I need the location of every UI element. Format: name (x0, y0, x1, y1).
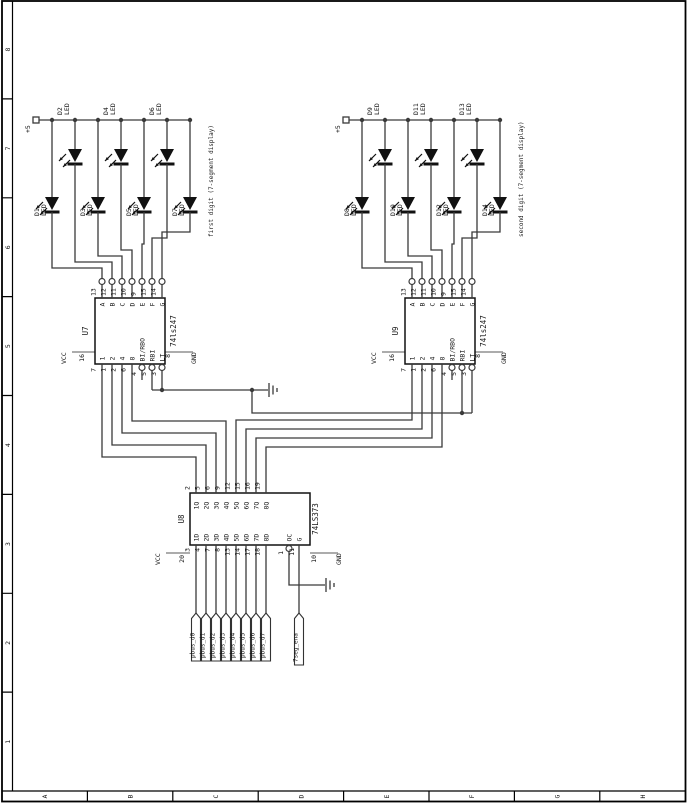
inversion-bubble-icon (159, 279, 165, 285)
led-part-label: LED (109, 103, 117, 115)
pin-label: 6Q (243, 502, 251, 510)
inversion-bubble-icon (159, 365, 165, 371)
row-label: 3 (4, 542, 12, 546)
pin-label: C (119, 302, 127, 306)
led-part-label: LED (373, 103, 381, 115)
row-label: 7 (4, 146, 12, 150)
second-digit-note: second digit (7-segment display) (518, 121, 525, 237)
chip-u9: U9 74ls247 13 A 12 B 11 C 10 D 9 E (370, 279, 508, 381)
pin-label: 4Q (223, 502, 231, 510)
pin-number: 7 (400, 368, 408, 372)
inversion-bubble-icon (469, 365, 475, 371)
pin-number: 14 (234, 548, 242, 556)
vcc-label: VCC (370, 352, 378, 364)
led-part-label: LED (40, 204, 48, 216)
col-label: F (468, 794, 476, 798)
led-top-row: D13 LED (458, 103, 485, 220)
pin-label: 8 (129, 356, 137, 360)
pin-number: 4 (440, 372, 448, 376)
led-top-row: D11 LED (412, 103, 439, 220)
col-label: H (639, 794, 647, 798)
pin-label: 7Q (253, 502, 261, 510)
led-part-label: LED (488, 204, 496, 216)
vcc-label: VCC (60, 352, 68, 364)
led-part-label: LED (155, 103, 163, 115)
pin-number: 5 (140, 372, 148, 376)
inversion-bubble-icon (429, 279, 435, 285)
pin-number: 3 (184, 548, 192, 552)
gnd-symbol-icon (326, 578, 334, 592)
g-pin: G 11 7seg_ena (288, 538, 304, 666)
led-to-u7-wires (52, 220, 190, 279)
vcc-pin-number: 16 (388, 354, 396, 362)
row-label: 4 (4, 443, 12, 447)
led-diode-icon (59, 149, 83, 167)
chip-ref-label: U7 (81, 326, 90, 335)
pin-label: 8 (439, 356, 447, 360)
pin-number: 12 (224, 482, 232, 490)
inversion-bubble-icon (459, 365, 465, 371)
chip-u7: U7 74ls247 13 A 12 B 11 C 10 D 9 E (60, 279, 198, 381)
schematic-canvas: 87654321 ABCDEFGH +5 D2 LED D4 LED D6 (0, 0, 687, 803)
pin-label: C (429, 302, 437, 306)
pin-label: G (296, 538, 304, 542)
gnd-label: GND (500, 352, 508, 364)
inversion-bubble-icon (459, 279, 465, 285)
gnd-symbol-icon (269, 383, 277, 397)
pin-label: 4D (223, 534, 231, 542)
pin-number: 18 (254, 548, 262, 556)
pin-label: 2Q (203, 502, 211, 510)
gnd-label: GND (190, 352, 198, 364)
u7-data-wires (102, 380, 226, 470)
first-digit-note: first digit (7-segment display) (208, 125, 215, 237)
led-top-row: D6 LED (148, 103, 175, 220)
pin-label: A (409, 302, 417, 306)
inversion-bubble-icon (409, 279, 415, 285)
pin-number: 3 (460, 372, 468, 376)
plus5-connector-icon (33, 117, 39, 123)
col-label: A (41, 794, 49, 798)
led-bottom-row: D5 LED (125, 118, 152, 220)
led-part-label: LED (442, 204, 450, 216)
pin-label: 7D (253, 534, 261, 542)
plus5-label: +5 (334, 125, 342, 133)
net-label: pbus_d0 (190, 632, 197, 658)
pin-label: 2D (203, 534, 211, 542)
pin-number: 15 (450, 288, 458, 296)
pin-number: 1 (100, 368, 108, 372)
schematic-page: 87654321 ABCDEFGH +5 D2 LED D4 LED D6 (0, 0, 687, 803)
pin-number: 9 (214, 486, 222, 490)
pin-label: E (449, 302, 457, 306)
led-diode-icon (369, 149, 393, 167)
junction-dot (460, 411, 464, 415)
led-diode-icon (151, 149, 175, 167)
pin-label: OC (286, 534, 294, 542)
col-label: E (383, 794, 391, 798)
pin-number: 4 (130, 372, 138, 376)
sheet-frame: 87654321 ABCDEFGH (2, 1, 686, 802)
pin-number: 11 (420, 288, 428, 296)
led-part-label: LED (178, 204, 186, 216)
pin-number: 9 (440, 292, 448, 296)
row-separators (2, 99, 13, 692)
pin-number: 10 (120, 288, 128, 296)
col-label: G (554, 794, 562, 798)
led-group-first-digit: +5 D2 LED D4 LED D6 LED (24, 103, 215, 278)
pin-number: 6 (204, 486, 212, 490)
pin-number: 1 (410, 368, 418, 372)
led-part-label: LED (86, 204, 94, 216)
inversion-bubble-icon (449, 365, 455, 371)
pin-label: 2 (419, 356, 427, 360)
led-bottom-row: D12 LED (435, 118, 462, 220)
row-label: 1 (4, 740, 12, 744)
u9-data-wires (236, 380, 442, 470)
inversion-bubble-icon (129, 279, 135, 285)
pin-number: 12 (100, 288, 108, 296)
led-top-row: D9 LED (366, 103, 393, 220)
led-part-label: LED (419, 103, 427, 115)
net-label: pbus_d1 (200, 632, 207, 658)
led-diode-icon (415, 149, 439, 167)
pin-label: 1D (193, 534, 201, 542)
chip-ref-label: U8 (177, 514, 186, 524)
led-part-label: LED (396, 204, 404, 216)
gnd-pin-number: 8 (164, 354, 172, 358)
pin-label: BI/RBO (139, 338, 147, 362)
inversion-bubble-icon (469, 279, 475, 285)
vcc-pin-number: 16 (78, 354, 86, 362)
led-diode-icon (105, 149, 129, 167)
chip-part-label: 74LS373 (311, 503, 320, 535)
pin-number: 9 (130, 292, 138, 296)
junction-dot (160, 388, 164, 392)
pin-number: 16 (244, 482, 252, 490)
pin-label: 4 (429, 356, 437, 360)
pin-label: G (159, 302, 167, 306)
gnd-label: GND (335, 553, 343, 565)
col-label: C (212, 794, 220, 798)
pin-number: 12 (410, 288, 418, 296)
net-label: 7seg_ena (293, 633, 300, 662)
pin-number: 2 (184, 486, 192, 490)
gnd-pin-number: 8 (474, 354, 482, 358)
pin-number: 7 (90, 368, 98, 372)
inversion-bubble-icon (149, 365, 155, 371)
pin-label: 3Q (213, 502, 221, 510)
led-top-row: D4 LED (102, 103, 129, 220)
pin-number: 3 (150, 372, 158, 376)
led-bottom-row: D14 LED (481, 118, 508, 220)
led-part-label: LED (132, 204, 140, 216)
pin-number: 13 (90, 288, 98, 296)
pin-label: 6D (243, 534, 251, 542)
pin-number: 5 (450, 372, 458, 376)
pin-label: 1Q (193, 502, 201, 510)
sheet-border (2, 1, 686, 802)
led-bottom-row: D1 LED (33, 118, 60, 220)
col-label: B (127, 794, 135, 798)
pin-label: 3D (213, 534, 221, 542)
net-label: pbus_d4 (230, 632, 237, 658)
pin-number: 5 (194, 486, 202, 490)
pin-number: 6 (430, 368, 438, 372)
pin-label: RBI (149, 350, 157, 362)
inversion-bubble-icon (439, 279, 445, 285)
pin-number: 17 (244, 548, 252, 556)
pin-number: 8 (214, 548, 222, 552)
inversion-bubble-icon (149, 279, 155, 285)
pin-number: 2 (420, 368, 428, 372)
pin-number: 7 (204, 548, 212, 552)
led-bottom-row: D7 LED (171, 118, 198, 220)
pin-number: 11 (288, 548, 296, 556)
pin-label: F (149, 302, 157, 306)
col-separators (87, 791, 599, 802)
pin-number: 1 (277, 551, 285, 555)
row-label: 8 (4, 47, 12, 51)
pin-label: B (419, 302, 427, 306)
pin-label: B (109, 302, 117, 306)
pin-number: 14 (150, 288, 158, 296)
pin-label: 1 (99, 356, 107, 360)
gnd-net-upper (152, 380, 472, 415)
inversion-bubble-icon (419, 279, 425, 285)
net-label: pbus_d6 (250, 632, 257, 658)
pin-label: 8D (263, 534, 271, 542)
gnd-pin-number: 10 (310, 555, 318, 563)
pin-number: 15 (140, 288, 148, 296)
led-part-label: LED (465, 103, 473, 115)
pin-label: D (129, 302, 137, 306)
led-to-u9-wires (362, 220, 500, 279)
pin-number: 11 (110, 288, 118, 296)
inversion-bubble-icon (139, 279, 145, 285)
pin-number: 13 (224, 548, 232, 556)
pin-label: BI/RBO (449, 338, 457, 362)
led-part-label: LED (350, 204, 358, 216)
led-bottom-row: D10 LED (389, 118, 416, 220)
col-label: D (297, 794, 305, 798)
net-label: pbus_d2 (210, 632, 217, 658)
pin-number: 6 (120, 368, 128, 372)
vcc-label: VCC (154, 553, 162, 565)
pin-label: A (99, 302, 107, 306)
pin-label: 2 (109, 356, 117, 360)
pin-number: 4 (194, 548, 202, 552)
pin-number: 10 (430, 288, 438, 296)
pin-number: 15 (234, 482, 242, 490)
pin-number: 14 (460, 288, 468, 296)
led-group-second-digit: +5 D9 LED D11 LED D13 LED (334, 103, 525, 278)
pin-label: 1 (409, 356, 417, 360)
chip-part-label: 74ls247 (479, 315, 488, 347)
led-diode-icon (461, 149, 485, 167)
pin-label: E (139, 302, 147, 306)
inversion-bubble-icon (99, 279, 105, 285)
led-bottom-row: D3 LED (79, 118, 106, 220)
inversion-bubble-icon (139, 365, 145, 371)
pin-number: 19 (254, 482, 262, 490)
pin-label: 5D (233, 534, 241, 542)
inversion-bubble-icon (449, 279, 455, 285)
net-label: pbus_d7 (260, 632, 267, 658)
pin-number: 2 (110, 368, 118, 372)
chip-u373: U8 74LS373 2 1Q 1D 3 pbus_d0 5 2Q 2D 4 p… (154, 470, 343, 665)
net-label: pbus_d5 (240, 632, 247, 658)
inversion-bubble-icon (119, 279, 125, 285)
pin-label: D (439, 302, 447, 306)
chip-part-label: 74ls247 (169, 315, 178, 347)
led-part-label: LED (63, 103, 71, 115)
inversion-bubble-icon (109, 279, 115, 285)
chip-ref-label: U9 (391, 326, 400, 335)
pin-label: 5Q (233, 502, 241, 510)
led-top-row: D2 LED (56, 103, 83, 220)
junction-dot (250, 388, 254, 392)
led-bottom-row: D8 LED (343, 118, 370, 220)
vcc-pin-number: 20 (178, 555, 186, 563)
row-label: 5 (4, 344, 12, 348)
plus5-label: +5 (24, 125, 32, 133)
row-label: 2 (4, 641, 12, 645)
pin-number: 13 (400, 288, 408, 296)
plus5-connector-icon (343, 117, 349, 123)
pin-label: RBI (459, 350, 467, 362)
pin-label: 4 (119, 356, 127, 360)
net-label: pbus_d3 (220, 632, 227, 658)
row-label: 6 (4, 245, 12, 249)
pin-label: G (469, 302, 477, 306)
pin-label: 8Q (263, 502, 271, 510)
pin-label: F (459, 302, 467, 306)
